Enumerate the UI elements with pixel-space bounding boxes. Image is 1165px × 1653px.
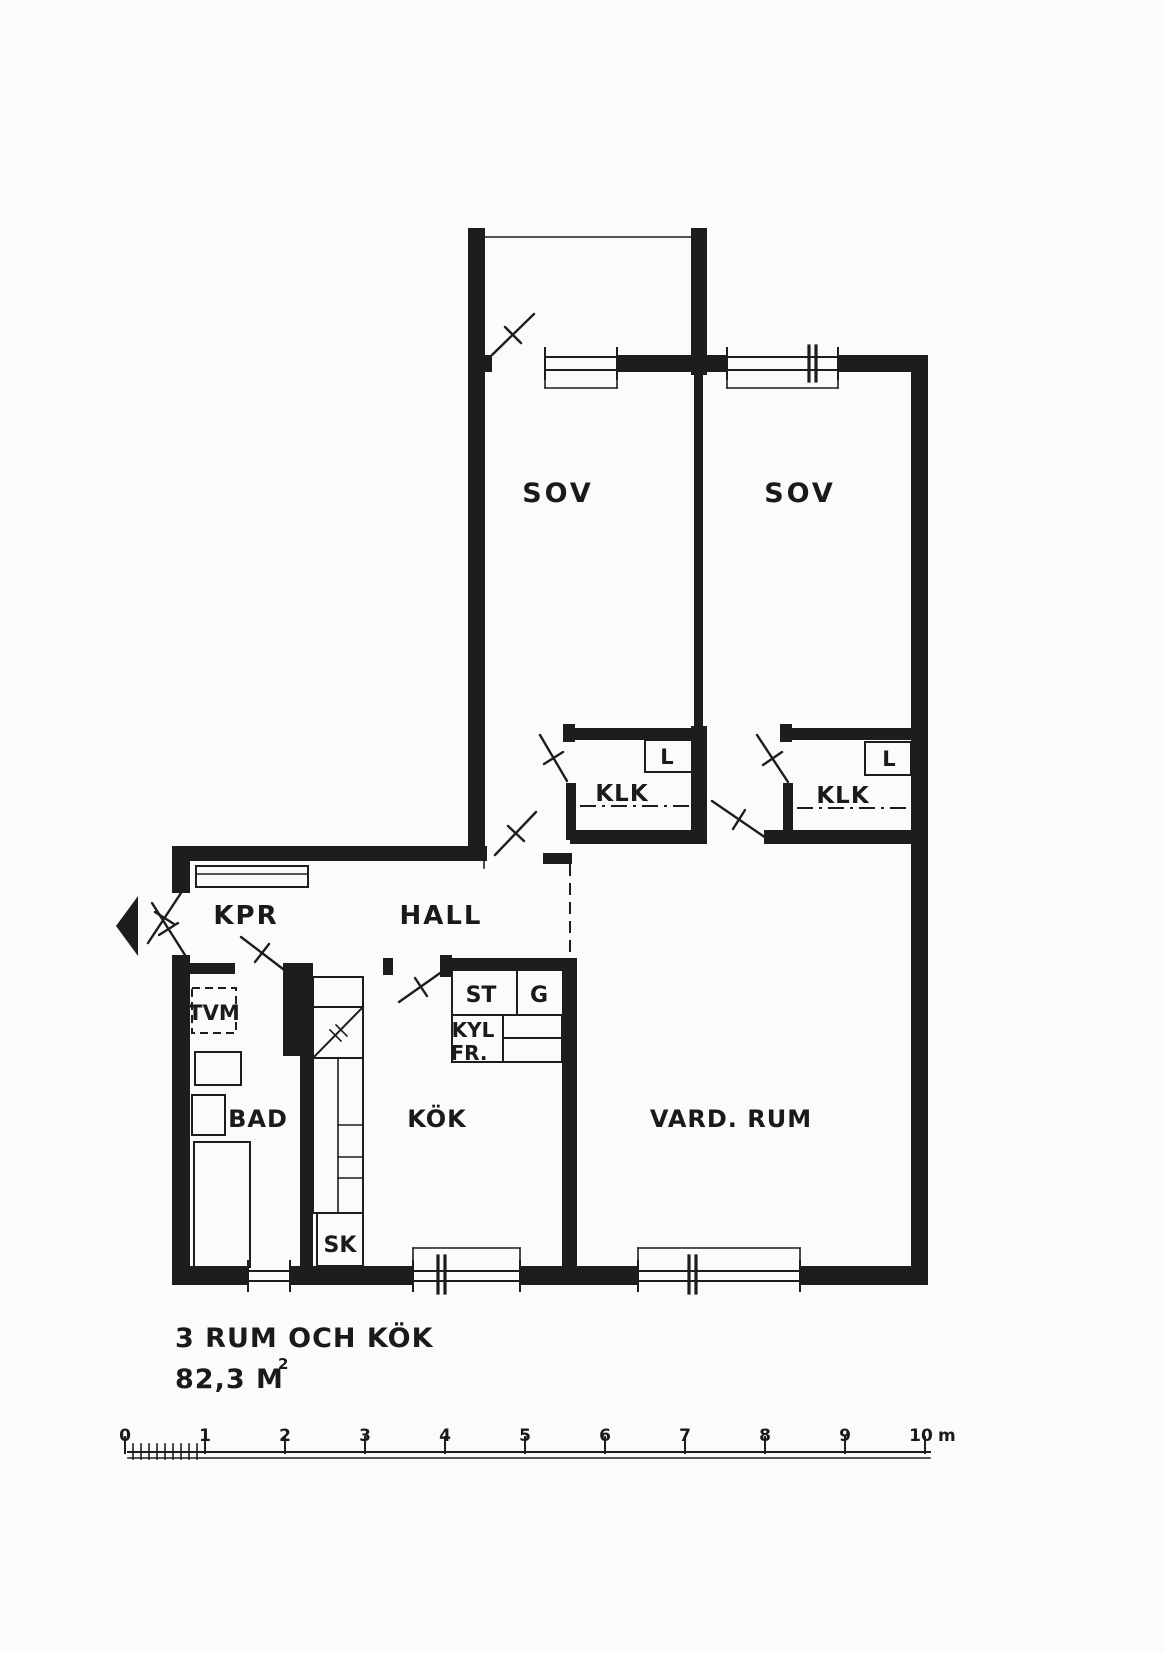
top-wall-mid [617, 355, 727, 372]
plan-area-superscript: 2 [278, 1355, 288, 1373]
label-tvm: TVM [188, 1001, 239, 1025]
klk1-top-wall [563, 728, 692, 740]
top-wall-left [468, 355, 492, 372]
left-wall-upper [172, 846, 190, 893]
bad-top-wall [190, 963, 235, 974]
hall-top-wall [172, 846, 487, 861]
chimney-block [283, 963, 313, 1056]
floor-plan-page: SOV SOV L L KLK KLK KPR HALL TVM ST G KY… [0, 0, 1165, 1653]
entrance-door [116, 893, 185, 956]
sov2-window [727, 346, 838, 388]
kok-stove [313, 1007, 363, 1058]
kpr-shelf [196, 866, 308, 887]
sov2-door [712, 801, 766, 838]
scale-label-0: 0 [119, 1426, 131, 1446]
scale-unit: m [938, 1426, 956, 1446]
kok-shelf-b [503, 1038, 562, 1062]
bottom-wall-a [172, 1266, 248, 1285]
bottom-wall-c [520, 1266, 638, 1285]
footer: 3 RUM OCH KÖK 82,3 M 2 [175, 1321, 434, 1395]
scale-label-9: 9 [839, 1426, 851, 1446]
kok-counter [313, 1058, 363, 1213]
scale-label-1: 1 [199, 1426, 211, 1446]
plan-area: 82,3 M [175, 1364, 284, 1395]
doors [116, 314, 788, 1002]
right-wall [911, 355, 928, 1285]
entrance-arrow [116, 896, 138, 956]
bad-bathtub [194, 1142, 250, 1267]
label-kok: KÖK [407, 1103, 467, 1133]
klk2-top-wall [780, 728, 911, 740]
label-klk2: KLK [816, 783, 869, 809]
scale-label-2: 2 [279, 1426, 291, 1446]
hall-door-stub [543, 853, 572, 864]
bad-sink [195, 1052, 241, 1085]
stg-top-wall [440, 958, 575, 970]
kok-shelf-a [503, 1015, 562, 1038]
label-fr: FR. [450, 1041, 487, 1065]
sov1-window [545, 348, 617, 388]
label-sov2: SOV [764, 478, 836, 509]
vardagsrum-window [638, 1248, 800, 1293]
sov-partition-klk [691, 726, 707, 844]
balcony-left-wall [468, 228, 485, 360]
label-vardagsrum: VARD. RUM [650, 1105, 812, 1133]
kok-door [399, 971, 443, 1002]
label-kyl: KYL [452, 1018, 495, 1042]
sov-partition [694, 372, 703, 732]
kok-window [413, 1248, 520, 1293]
scale-bar: 0 1 2 3 4 5 6 7 8 9 10 m [119, 1426, 956, 1459]
balcony-right-wall [691, 228, 707, 360]
klk2-top-stub [780, 724, 792, 742]
label-hall: HALL [399, 901, 482, 931]
floor-plan-canvas: SOV SOV L L KLK KLK KPR HALL TVM ST G KY… [0, 0, 1165, 1653]
label-g: G [530, 983, 548, 1008]
scale-label-3: 3 [359, 1426, 371, 1446]
klk2-bottom-wall [764, 830, 911, 844]
label-kpr: KPR [213, 901, 278, 931]
kok-door-stub [383, 958, 393, 975]
balcony-door [492, 314, 534, 355]
scale-label-7: 7 [679, 1426, 691, 1446]
plan-title: 3 RUM OCH KÖK [175, 1321, 434, 1354]
stg-stub [440, 955, 452, 977]
klk1-door [540, 735, 567, 781]
klk1-top-stub [563, 724, 575, 742]
scale-label-4: 4 [439, 1426, 451, 1446]
sov1-left-wall [468, 355, 485, 860]
label-bad: BAD [228, 1105, 288, 1133]
label-sov1: SOV [522, 478, 594, 509]
bad-kok-wall [300, 1056, 313, 1268]
bad-window [248, 1261, 290, 1291]
bad-door [241, 937, 283, 969]
label-l2: L [882, 747, 895, 771]
scale-label-8: 8 [759, 1426, 771, 1446]
room-labels: SOV SOV L L KLK KLK KPR HALL TVM ST G KY… [188, 478, 895, 1258]
klk1-bottom-wall [570, 830, 707, 844]
label-st: ST [466, 983, 497, 1008]
sov1-door [495, 812, 536, 855]
scale-label-10: 10 [909, 1426, 933, 1446]
label-sk: SK [324, 1233, 358, 1258]
scale-label-5: 5 [519, 1426, 531, 1446]
scale-labels: 0 1 2 3 4 5 6 7 8 9 10 m [119, 1426, 956, 1446]
label-klk1: KLK [595, 781, 648, 807]
label-l1: L [660, 745, 673, 769]
kok-upper-cabinet [313, 977, 363, 1007]
scale-label-6: 6 [599, 1426, 611, 1446]
bad-wc [192, 1095, 225, 1135]
bottom-wall-d [800, 1266, 928, 1285]
klk2-door [757, 735, 788, 782]
bottom-wall-b [290, 1266, 413, 1285]
kok-vard-wall [562, 958, 577, 1268]
